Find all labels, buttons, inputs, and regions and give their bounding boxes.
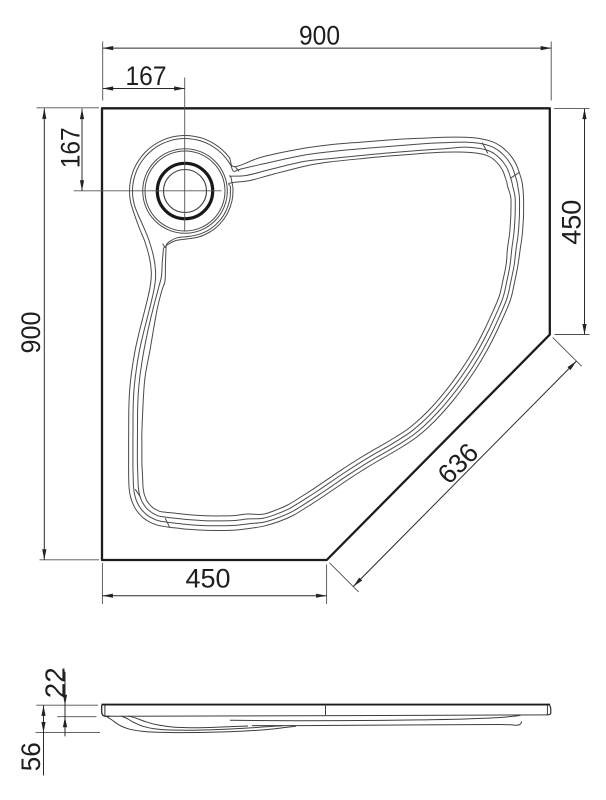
svg-text:167: 167 <box>56 127 86 168</box>
svg-text:22: 22 <box>39 667 70 698</box>
svg-text:900: 900 <box>16 312 46 354</box>
svg-text:167: 167 <box>126 61 167 91</box>
svg-text:450: 450 <box>557 200 587 245</box>
svg-text:56: 56 <box>16 742 46 771</box>
svg-text:450: 450 <box>186 563 231 593</box>
svg-text:900: 900 <box>299 21 340 51</box>
